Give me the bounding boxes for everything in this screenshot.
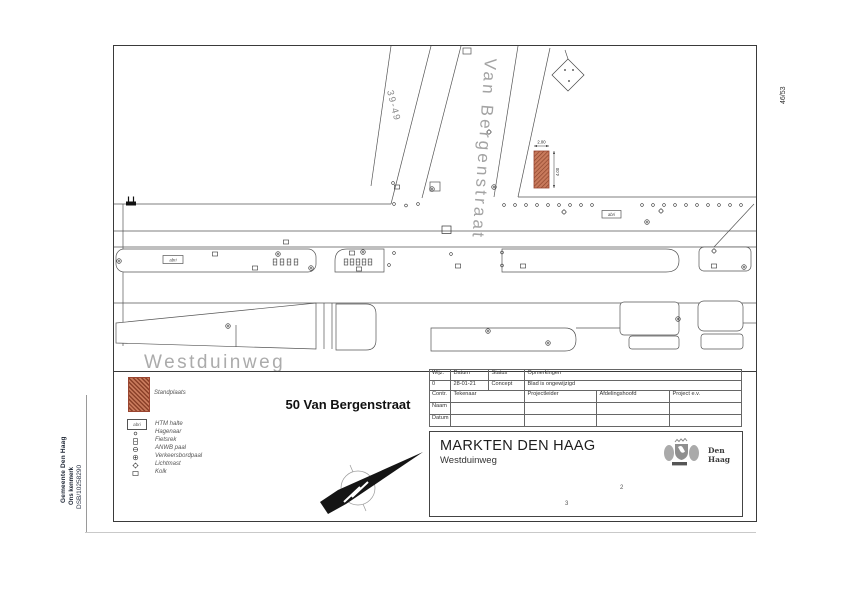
abri-box-text: abri xyxy=(133,422,141,427)
standplaats-swatch xyxy=(128,377,150,412)
drawing-title: 50 Van Bergenstraat xyxy=(272,397,424,412)
rev-role-contr: Contr. xyxy=(430,391,451,403)
den-haag-logo-text: Den Haag xyxy=(708,446,742,464)
abri-shelter-left: abri xyxy=(163,256,183,264)
legend-label-lichtmast: Lichtmast xyxy=(155,461,181,467)
rev-row-datum: Datum xyxy=(430,415,451,427)
lichtmast-markers xyxy=(486,129,717,254)
rev-value-status: Concept xyxy=(489,381,525,391)
legend-label-htm-halte: HTM halte xyxy=(155,421,183,427)
street-edges xyxy=(114,46,756,346)
abri-shelter-right: abri xyxy=(602,211,621,219)
traffic-islands xyxy=(116,247,756,351)
rev-value-datum: 28-01-21 xyxy=(451,381,489,391)
north-arrow xyxy=(309,436,439,526)
rev-role-projectleider: Projectleider xyxy=(525,391,597,403)
tram-mast xyxy=(126,197,136,206)
drawing-page: Gemeente Den Haag Ons kenmerk DSB/102582… xyxy=(0,0,842,595)
standplaats-marker: 2.00 4.00 xyxy=(534,140,560,189)
rev-value-wijz: 0 xyxy=(430,381,451,391)
parcel-label-39-49: 39-49 xyxy=(384,89,402,123)
standplaats-width-label: 2.00 xyxy=(537,140,546,145)
rev-value-opmerkingen: Blad is ongewijzigd xyxy=(525,381,742,391)
kolk-icon xyxy=(129,468,142,479)
grid-number-2: 2 xyxy=(620,485,623,491)
rev-header-opmerkingen: Opmerkingen xyxy=(525,370,742,381)
project-subtitle: Westduinweg xyxy=(440,455,497,466)
map-svg: 2.00 4.00 abri abri xyxy=(114,46,756,371)
standplaats-height-label: 4.00 xyxy=(555,167,560,176)
legend-label-kolk: Kolk xyxy=(155,469,167,475)
margin-kenmerk-value: DSB/10258290 xyxy=(76,465,83,509)
diamond-building xyxy=(552,50,584,91)
title-block: MARKTEN DEN HAAG Westduinweg Den Haag 2 … xyxy=(429,431,743,517)
project-title: MARKTEN DEN HAAG xyxy=(440,438,595,454)
rev-row-naam: Naam xyxy=(430,403,451,415)
rev-header-status: Status xyxy=(489,370,525,381)
map-area: 2.00 4.00 abri abri xyxy=(114,46,756,372)
rev-role-project-ev: Project e.v. xyxy=(670,391,742,403)
den-haag-crest-icon xyxy=(658,438,704,468)
margin-gemeente-text: Gemeente Den Haag xyxy=(60,436,67,503)
abri-label-left: abri xyxy=(169,258,177,263)
legend-label-hagenaar: Hagenaar xyxy=(155,429,181,435)
legend-label-fietsrek: Fietsrek xyxy=(155,437,176,443)
margin-kenmerk-label: Ons kenmerk xyxy=(69,467,75,505)
abri-label-right: abri xyxy=(608,212,616,217)
margin-rule xyxy=(86,395,87,533)
page-number: 46/53 xyxy=(780,86,787,104)
rev-header-datum: Datum xyxy=(451,370,489,381)
rev-role-tekenaar: Tekenaar xyxy=(451,391,525,403)
street-name-van-bergenstraat: Van Bergenstraat xyxy=(468,58,500,241)
drawing-sheet: 2.00 4.00 abri abri xyxy=(113,45,757,522)
revision-table: Wijz. Datum Status Opmerkingen 0 28-01-2… xyxy=(429,369,742,427)
page-edge-line xyxy=(85,532,756,533)
legend-label-verkeersbordpaal: Verkeersbordpaal xyxy=(155,453,202,459)
grid-number-3: 3 xyxy=(565,501,568,507)
legend-label-standplaats: Standplaats xyxy=(154,390,186,396)
legend-label-anwb-paal: ANWB paal xyxy=(155,445,186,451)
street-name-westduinweg: Westduinweg xyxy=(144,352,285,371)
rev-header-wijz: Wijz. xyxy=(430,370,451,381)
rev-role-afdelingshoofd: Afdelingshoofd xyxy=(597,391,670,403)
